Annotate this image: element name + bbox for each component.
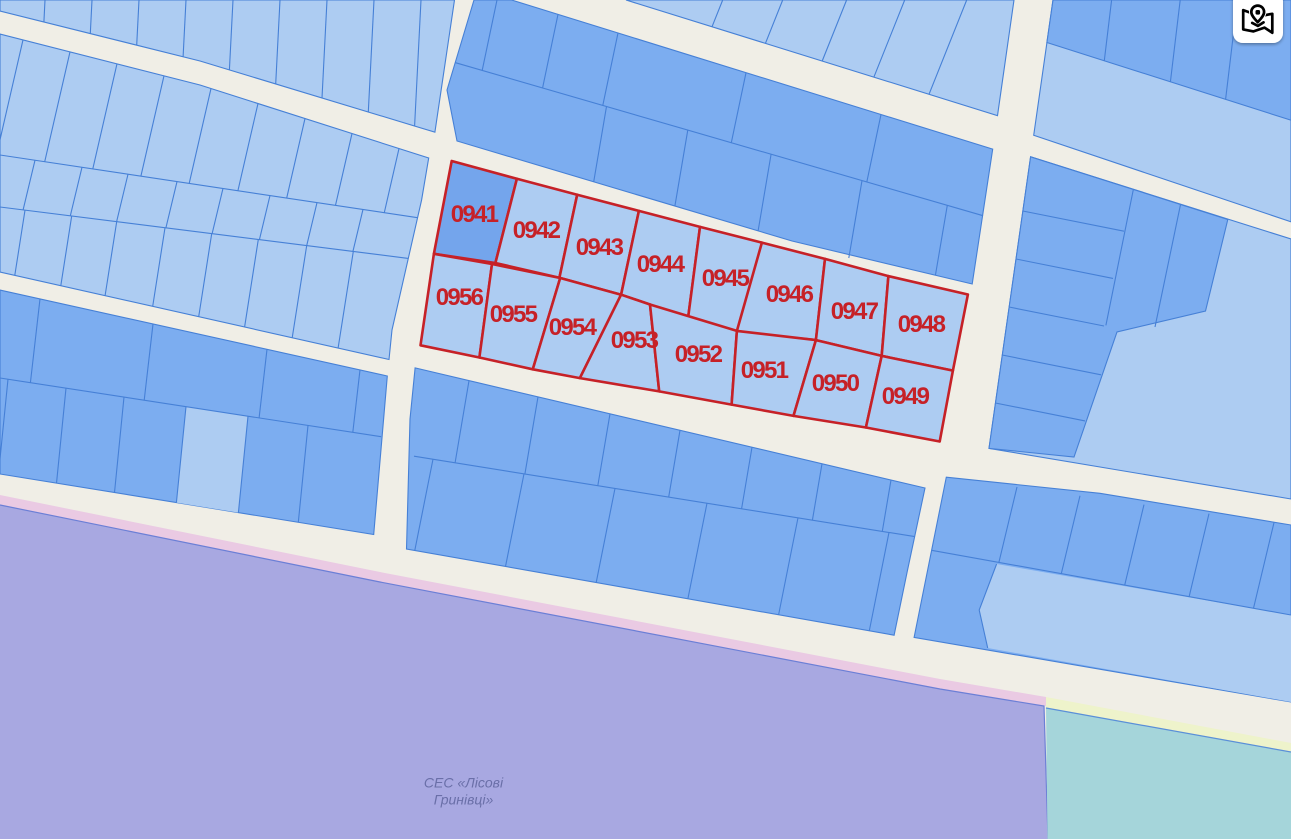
svg-text:0952: 0952 bbox=[675, 341, 723, 368]
svg-text:0955: 0955 bbox=[490, 301, 538, 328]
svg-text:Гринівці»: Гринівці» bbox=[434, 792, 494, 808]
svg-text:0956: 0956 bbox=[436, 284, 484, 311]
svg-text:0948: 0948 bbox=[898, 311, 946, 338]
svg-text:0947: 0947 bbox=[831, 298, 879, 325]
svg-text:СЕС «Лісові: СЕС «Лісові bbox=[424, 775, 504, 791]
svg-text:0946: 0946 bbox=[766, 281, 814, 308]
svg-text:0949: 0949 bbox=[882, 383, 930, 410]
svg-text:0953: 0953 bbox=[611, 327, 659, 354]
svg-text:0942: 0942 bbox=[513, 217, 561, 244]
svg-text:0943: 0943 bbox=[576, 234, 624, 261]
svg-text:0941: 0941 bbox=[451, 201, 499, 228]
svg-text:0944: 0944 bbox=[637, 251, 686, 278]
svg-text:0950: 0950 bbox=[812, 370, 860, 397]
svg-text:0945: 0945 bbox=[702, 265, 750, 292]
svg-text:0951: 0951 bbox=[741, 357, 789, 384]
svg-text:0954: 0954 bbox=[549, 314, 598, 341]
